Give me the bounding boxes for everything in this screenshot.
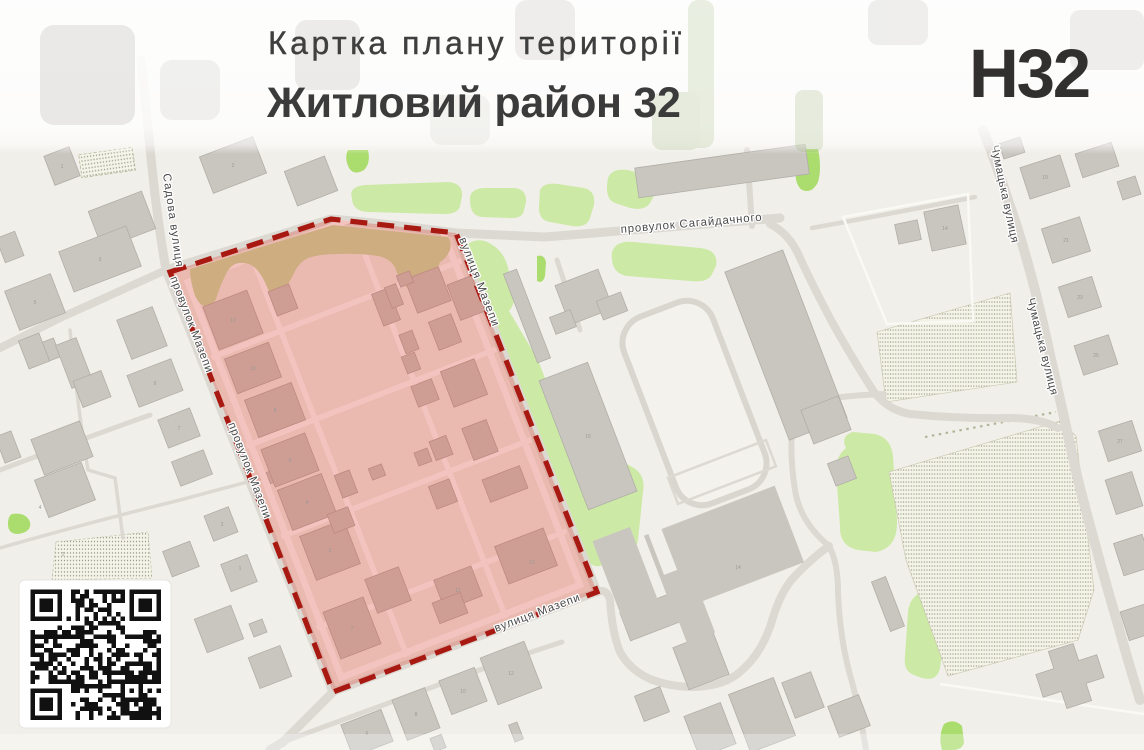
svg-text:10: 10: [250, 366, 256, 372]
svg-text:14: 14: [735, 565, 741, 571]
svg-text:15: 15: [585, 434, 591, 440]
svg-text:23: 23: [1077, 295, 1083, 301]
svg-text:19: 19: [1042, 175, 1048, 181]
svg-text:5: 5: [34, 300, 37, 306]
svg-text:10: 10: [460, 689, 466, 695]
svg-text:7: 7: [351, 626, 354, 632]
svg-text:Картка плану території: Картка плану території: [268, 25, 685, 61]
svg-text:2: 2: [232, 163, 235, 169]
svg-text:8: 8: [415, 712, 418, 718]
svg-text:27: 27: [1117, 439, 1123, 445]
svg-text:1: 1: [239, 566, 242, 572]
svg-text:7: 7: [178, 426, 181, 432]
svg-text:13: 13: [529, 560, 535, 566]
svg-text:Н32: Н32: [969, 35, 1089, 112]
svg-text:2: 2: [62, 552, 65, 558]
svg-text:11: 11: [455, 588, 460, 594]
svg-text:4: 4: [306, 500, 309, 506]
svg-text:3: 3: [99, 257, 102, 263]
svg-text:3: 3: [221, 522, 224, 528]
svg-text:Житловий район 32: Житловий район 32: [266, 79, 681, 127]
svg-text:25: 25: [1093, 353, 1099, 359]
svg-text:14: 14: [942, 226, 948, 232]
svg-text:12: 12: [230, 318, 236, 324]
svg-text:4: 4: [39, 505, 42, 511]
svg-text:21: 21: [1063, 238, 1069, 244]
svg-text:6: 6: [289, 458, 292, 464]
svg-text:2: 2: [329, 548, 332, 554]
svg-text:12: 12: [508, 671, 514, 677]
svg-text:1: 1: [61, 164, 64, 170]
svg-text:9: 9: [154, 381, 157, 387]
svg-text:8: 8: [274, 408, 277, 414]
